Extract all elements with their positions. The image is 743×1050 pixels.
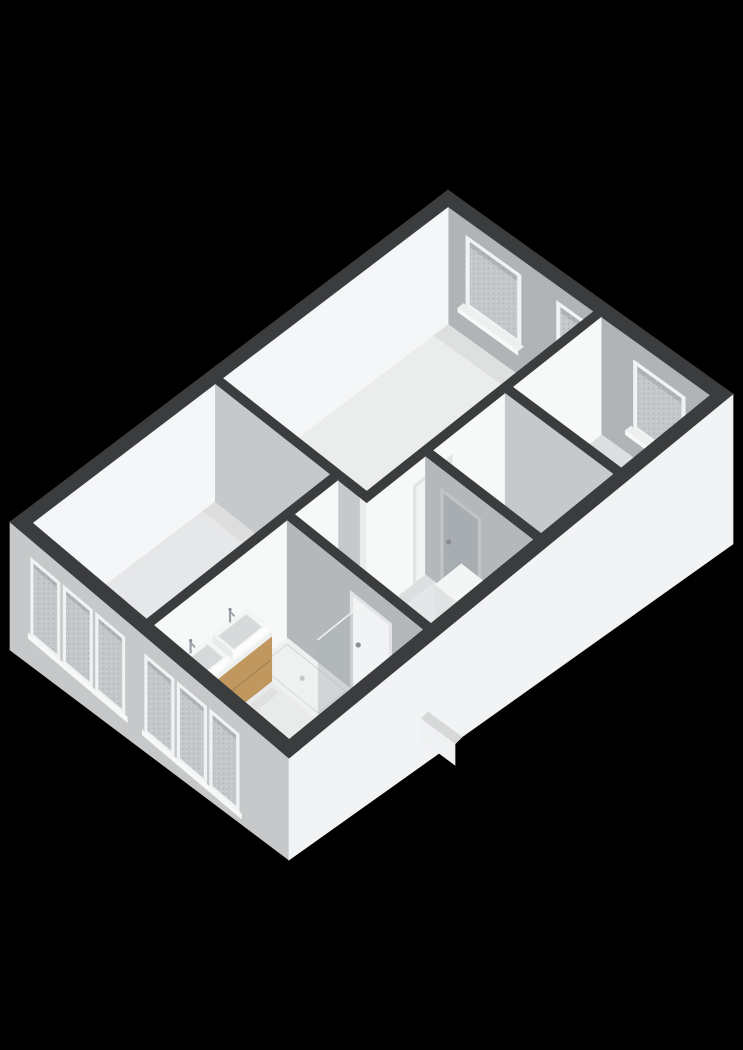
- shower-drain: [300, 676, 305, 681]
- vanity-faucet-1-tip: [189, 639, 192, 642]
- floorplan-viewer: [0, 0, 743, 1050]
- door-stairwell-handle: [446, 539, 451, 544]
- vanity-faucet-2-tip: [228, 608, 231, 611]
- floorplan-3d-render[interactable]: [0, 0, 743, 1050]
- door-bathroom-handle: [356, 642, 361, 647]
